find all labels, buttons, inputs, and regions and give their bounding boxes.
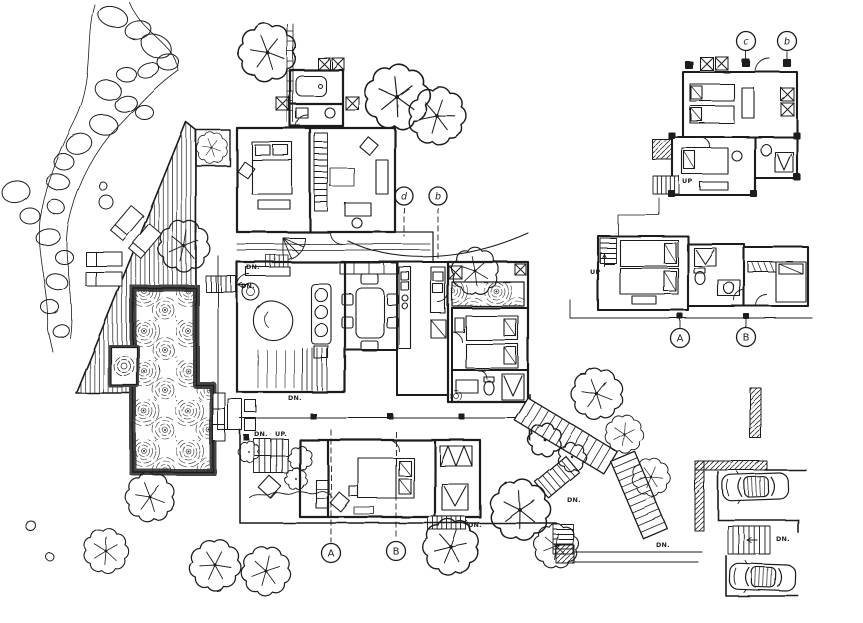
lounge-chair xyxy=(111,206,144,241)
skylight-icon xyxy=(276,58,359,110)
stair-label: UP xyxy=(682,177,692,185)
deck-planter xyxy=(196,130,230,166)
stair-label: UP xyxy=(590,268,600,276)
upper-plan-top-right xyxy=(652,57,799,196)
closet-room xyxy=(440,446,472,510)
lounger xyxy=(86,252,122,266)
stair-label: DN. xyxy=(246,263,260,271)
vent-icon xyxy=(449,264,526,279)
plan-sheet: d b c b A B A B DN. DN. DN. DN. UP. DN. … xyxy=(0,0,863,623)
car xyxy=(729,560,796,594)
organic-table xyxy=(254,301,293,341)
grid-marker-b-upper: b xyxy=(778,32,797,51)
kitchen xyxy=(399,267,446,349)
hedge xyxy=(250,491,332,498)
wall-sofa xyxy=(311,284,331,344)
bed xyxy=(358,458,414,498)
tree xyxy=(232,537,300,605)
parking-area xyxy=(695,388,806,596)
floor-plan-canvas: d b c b A B A B DN. DN. DN. DN. UP. DN. … xyxy=(0,0,863,623)
grid-marker-d-main: d xyxy=(395,187,413,205)
wing-stair xyxy=(600,238,616,266)
grid-marker-label: b xyxy=(435,192,441,203)
upper-plan-right-wing xyxy=(570,198,812,318)
grid-marker-b-main: b xyxy=(429,187,447,205)
grid-marker-label: B xyxy=(743,333,750,344)
living-steps xyxy=(258,348,327,390)
grid-marker-A-wing: A xyxy=(671,329,690,348)
grid-marker-label: A xyxy=(677,334,684,345)
grid-marker-label: b xyxy=(784,37,790,48)
stair-label: DN. xyxy=(567,496,581,504)
parking-steps xyxy=(728,526,770,554)
stair-label: DN. xyxy=(776,535,790,543)
wing-bath xyxy=(694,248,740,296)
grid-marker-B-wing: B xyxy=(737,328,756,347)
wing-bedroom-right xyxy=(748,262,806,302)
grid-marker-A-main: A xyxy=(322,544,341,563)
swimming-pool xyxy=(111,276,256,472)
stair-label: DN. xyxy=(656,541,670,549)
stair-label: DN. xyxy=(254,430,268,438)
study-furniture xyxy=(330,137,388,228)
master-bed xyxy=(238,142,292,209)
upper-stair xyxy=(653,176,679,194)
tree xyxy=(411,507,490,586)
dining-table xyxy=(342,274,398,351)
guest-bath xyxy=(456,374,524,400)
stair-label: UP. xyxy=(275,430,287,438)
tree xyxy=(571,368,622,420)
tree xyxy=(399,79,473,154)
stair-label: DN. xyxy=(468,521,482,529)
car xyxy=(722,470,789,504)
grid-marker-c-upper: c xyxy=(737,32,756,51)
grid-marker-B-main: B xyxy=(387,542,406,561)
lounger xyxy=(86,272,122,286)
tree xyxy=(196,132,227,163)
tree xyxy=(77,522,135,580)
deck-table xyxy=(99,195,113,209)
bathhouse-top xyxy=(276,24,359,126)
tree xyxy=(357,57,436,137)
interior-stair xyxy=(315,133,328,211)
grid-marker-label: A xyxy=(328,549,335,560)
spa xyxy=(111,347,137,385)
stair-label: DN. xyxy=(241,282,255,290)
grid-marker-label: c xyxy=(743,37,749,48)
south-bedroom xyxy=(259,395,530,530)
stair-label: DN. xyxy=(288,394,302,402)
grid-marker-label: B xyxy=(393,547,400,558)
guest-bedroom xyxy=(452,308,528,402)
tree xyxy=(184,535,245,596)
dining-room xyxy=(340,262,448,395)
grid-marker-label: d xyxy=(401,192,408,203)
tree xyxy=(125,472,174,521)
poolside-seating xyxy=(213,393,256,441)
